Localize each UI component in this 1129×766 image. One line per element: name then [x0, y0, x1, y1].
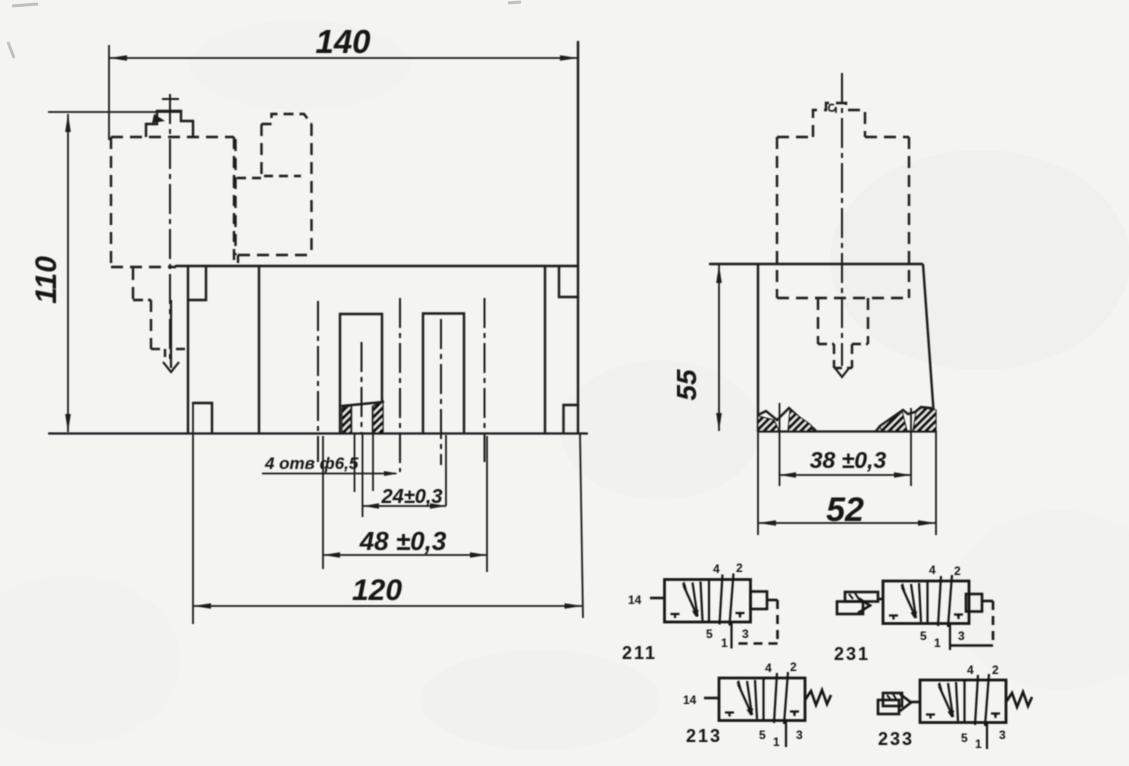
svg-text:4: 4 — [929, 563, 936, 577]
svg-text:120: 120 — [352, 574, 402, 607]
svg-text:3: 3 — [999, 728, 1006, 742]
svg-text:4: 4 — [713, 562, 720, 576]
svg-text:5: 5 — [706, 627, 713, 641]
svg-text:231: 231 — [834, 644, 870, 664]
svg-text:3: 3 — [796, 728, 803, 742]
svg-text:233: 233 — [878, 729, 914, 749]
svg-text:3: 3 — [958, 629, 965, 643]
svg-text:48 ±0,3: 48 ±0,3 — [359, 526, 447, 556]
svg-text:14: 14 — [628, 593, 642, 607]
svg-text:4: 4 — [765, 661, 772, 675]
svg-text:2: 2 — [790, 660, 797, 674]
svg-text:1: 1 — [721, 636, 728, 650]
svg-text:5: 5 — [920, 629, 927, 643]
svg-text:5: 5 — [759, 728, 766, 742]
svg-text:1: 1 — [773, 735, 780, 749]
svg-text:14: 14 — [683, 693, 697, 707]
svg-text:24±0,3: 24±0,3 — [380, 486, 442, 508]
svg-text:110: 110 — [30, 256, 63, 304]
svg-text:2: 2 — [992, 663, 999, 677]
svg-text:3: 3 — [742, 627, 749, 641]
svg-text:213: 213 — [686, 726, 722, 746]
svg-text:5: 5 — [961, 731, 968, 745]
svg-text:1: 1 — [934, 636, 941, 650]
svg-text:52: 52 — [826, 491, 864, 529]
svg-text:2: 2 — [736, 561, 743, 575]
svg-text:4: 4 — [967, 663, 974, 677]
svg-text:2: 2 — [954, 564, 961, 578]
svg-text:55: 55 — [671, 369, 702, 401]
svg-text:1: 1 — [975, 737, 982, 751]
svg-text:38 ±0,3: 38 ±0,3 — [810, 447, 887, 473]
svg-text:4 отв ф6,5: 4 отв ф6,5 — [264, 454, 359, 473]
svg-text:211: 211 — [622, 643, 657, 663]
svg-text:140: 140 — [315, 23, 371, 60]
